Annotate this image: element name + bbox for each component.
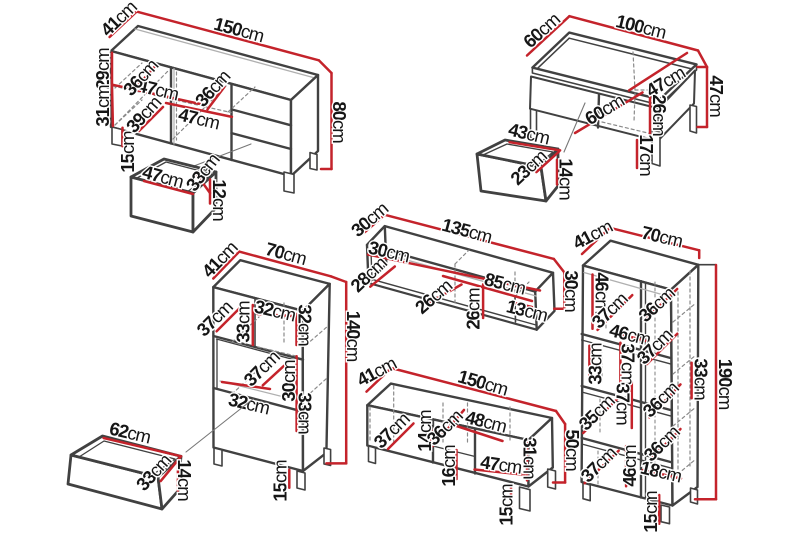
svg-text:15cm: 15cm xyxy=(117,131,138,173)
svg-text:32cm: 32cm xyxy=(295,304,316,346)
svg-text:26cm: 26cm xyxy=(462,288,483,330)
svg-text:29cm: 29cm xyxy=(92,48,113,90)
svg-text:15cm: 15cm xyxy=(269,460,290,502)
svg-text:14cm: 14cm xyxy=(175,459,196,501)
svg-text:31cm: 31cm xyxy=(92,85,113,127)
svg-text:80cm: 80cm xyxy=(330,101,351,143)
svg-text:16cm: 16cm xyxy=(438,445,459,487)
svg-text:33cm: 33cm xyxy=(584,343,605,385)
svg-text:140cm: 140cm xyxy=(344,311,365,362)
svg-text:26cm: 26cm xyxy=(650,94,671,136)
svg-text:190cm: 190cm xyxy=(716,359,737,410)
svg-text:33cm: 33cm xyxy=(232,301,253,343)
svg-text:12cm: 12cm xyxy=(210,179,231,221)
svg-text:15cm: 15cm xyxy=(640,491,661,533)
svg-text:33cm: 33cm xyxy=(691,358,712,400)
svg-text:30cm: 30cm xyxy=(562,270,583,312)
svg-text:14cm: 14cm xyxy=(556,158,577,200)
svg-text:31cm: 31cm xyxy=(520,437,541,479)
svg-text:37cm: 37cm xyxy=(613,383,634,425)
svg-text:17cm: 17cm xyxy=(637,134,658,176)
svg-text:33cm: 33cm xyxy=(295,392,316,434)
svg-text:46cm: 46cm xyxy=(619,445,640,487)
svg-text:15cm: 15cm xyxy=(495,484,516,526)
svg-text:47cm: 47cm xyxy=(707,75,728,117)
svg-text:50cm: 50cm xyxy=(563,429,584,471)
